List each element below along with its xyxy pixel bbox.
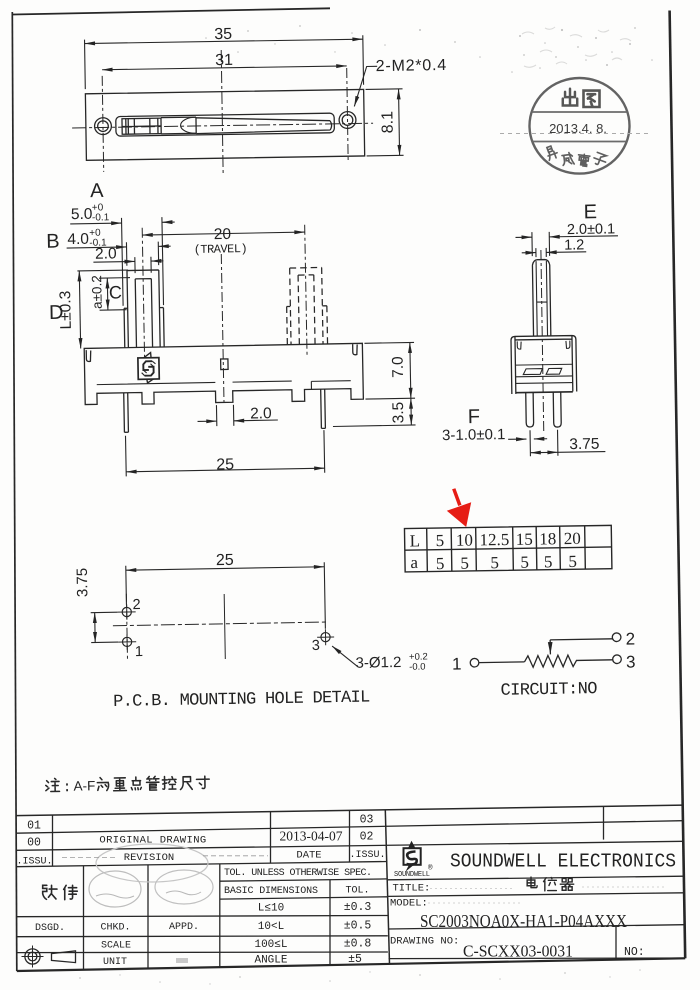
svg-text:5: 5 [435, 531, 444, 550]
svg-text:02: 02 [360, 831, 374, 844]
svg-text:TITLE:: TITLE: [393, 882, 431, 894]
svg-text:.ISSU.: .ISSU. [16, 856, 52, 867]
svg-text:CHKD.: CHKD. [100, 923, 130, 934]
svg-text:F: F [468, 406, 481, 428]
svg-text:5.0: 5.0 [71, 206, 93, 223]
svg-text:5: 5 [460, 554, 469, 573]
svg-text:A: A [90, 180, 104, 202]
svg-text:-0.0: -0.0 [409, 662, 426, 673]
svg-text:ORIGINAL DRAWING: ORIGINAL DRAWING [99, 834, 206, 846]
svg-text:15: 15 [516, 530, 533, 549]
svg-text:±0.5: ±0.5 [344, 920, 372, 933]
svg-text:03: 03 [360, 813, 374, 826]
svg-text::: : [62, 779, 71, 796]
svg-text:1: 1 [452, 654, 462, 673]
svg-text:ANGLE: ANGLE [254, 955, 287, 967]
svg-text:12.5: 12.5 [479, 530, 509, 549]
svg-text:(TRAVEL): (TRAVEL) [194, 242, 248, 257]
svg-text:5: 5 [436, 554, 445, 573]
svg-text:1.2: 1.2 [564, 237, 584, 253]
svg-text:5: 5 [568, 552, 577, 571]
svg-text:00: 00 [27, 836, 41, 849]
svg-text:5: 5 [520, 553, 529, 572]
svg-text:2.0: 2.0 [95, 245, 117, 262]
svg-text:C-SCXX03-0031: C-SCXX03-0031 [463, 942, 573, 961]
svg-text:L: L [410, 531, 421, 550]
svg-text:E: E [583, 201, 597, 223]
svg-text:2.0±0.1: 2.0±0.1 [567, 221, 616, 238]
svg-text:3.75: 3.75 [74, 568, 92, 597]
svg-text:8.1: 8.1 [379, 111, 396, 134]
svg-text:SOUNDWELL ELECTRONICS: SOUNDWELL ELECTRONICS [450, 851, 676, 873]
svg-text:5: 5 [490, 553, 499, 572]
svg-text:BASIC DIMENSIONS: BASIC DIMENSIONS [224, 886, 318, 897]
svg-text:3.5: 3.5 [390, 402, 407, 424]
svg-text:20: 20 [564, 529, 581, 548]
svg-text:L≤10: L≤10 [258, 903, 284, 915]
svg-text:31: 31 [215, 52, 233, 69]
svg-text:10<L: 10<L [258, 921, 284, 933]
svg-text:2.0: 2.0 [250, 405, 272, 422]
svg-text:TOL.: TOL. [345, 886, 369, 897]
svg-text:3.75: 3.75 [569, 436, 599, 453]
svg-text:DSGD.: DSGD. [35, 923, 65, 934]
svg-text:SOUNDWELL: SOUNDWELL [394, 871, 430, 879]
svg-text:TOL. UNLESS OTHERWISE SPEC.: TOL. UNLESS OTHERWISE SPEC. [224, 868, 372, 879]
svg-text:100≤L: 100≤L [254, 939, 287, 951]
svg-text:APPD.: APPD. [169, 922, 199, 933]
svg-text:2-M2*0.4: 2-M2*0.4 [376, 57, 448, 75]
svg-text:5: 5 [544, 552, 553, 571]
svg-text:35: 35 [214, 26, 232, 43]
svg-text:UNIT: UNIT [103, 957, 127, 968]
svg-text:SCALE: SCALE [101, 941, 131, 952]
svg-text:25: 25 [216, 456, 234, 473]
svg-text:3: 3 [312, 638, 320, 654]
svg-text:25: 25 [216, 552, 234, 569]
svg-text:SC2003NOA0X-HA1-P04AXXX: SC2003NOA0X-HA1-P04AXXX [420, 911, 627, 931]
svg-text:1: 1 [135, 644, 143, 660]
svg-text:4.0: 4.0 [67, 231, 89, 248]
svg-text:±0.8: ±0.8 [344, 938, 372, 951]
svg-text:DATE: DATE [296, 850, 321, 862]
svg-text:20: 20 [214, 226, 232, 243]
svg-text:7.0: 7.0 [390, 356, 407, 378]
svg-text:DRAWING NO:: DRAWING NO: [390, 935, 459, 947]
svg-text:18: 18 [539, 529, 556, 548]
svg-text:-0.1: -0.1 [92, 212, 110, 223]
svg-text:REVISION: REVISION [124, 852, 174, 864]
svg-text:D: D [49, 302, 64, 324]
svg-text:2: 2 [625, 629, 635, 648]
svg-text:.ISSU.: .ISSU. [349, 850, 385, 861]
svg-text:a: a [410, 553, 418, 572]
svg-text:2: 2 [132, 597, 140, 613]
svg-text:±0.3: ±0.3 [344, 901, 372, 914]
svg-text:±5: ±5 [348, 953, 362, 966]
svg-text:3: 3 [626, 652, 636, 671]
svg-text:10: 10 [456, 531, 473, 550]
svg-text:a±0.2: a±0.2 [89, 275, 105, 309]
svg-text:C: C [109, 282, 122, 302]
svg-text:A-F: A-F [73, 778, 95, 793]
svg-text:MODEL:: MODEL: [390, 898, 428, 910]
svg-text:01: 01 [27, 820, 41, 833]
svg-text:B: B [46, 230, 60, 252]
svg-text:NO:: NO: [624, 946, 645, 959]
svg-text:3-1.0±0.1: 3-1.0±0.1 [442, 426, 506, 444]
svg-text:CIRCUIT:NO: CIRCUIT:NO [500, 680, 597, 701]
svg-text:3-Ø1.2: 3-Ø1.2 [355, 654, 401, 672]
svg-text:P.C.B. MOUNTING HOLE DETAIL: P.C.B. MOUNTING HOLE DETAIL [113, 688, 370, 711]
svg-text:2013-04-07: 2013-04-07 [280, 829, 343, 844]
